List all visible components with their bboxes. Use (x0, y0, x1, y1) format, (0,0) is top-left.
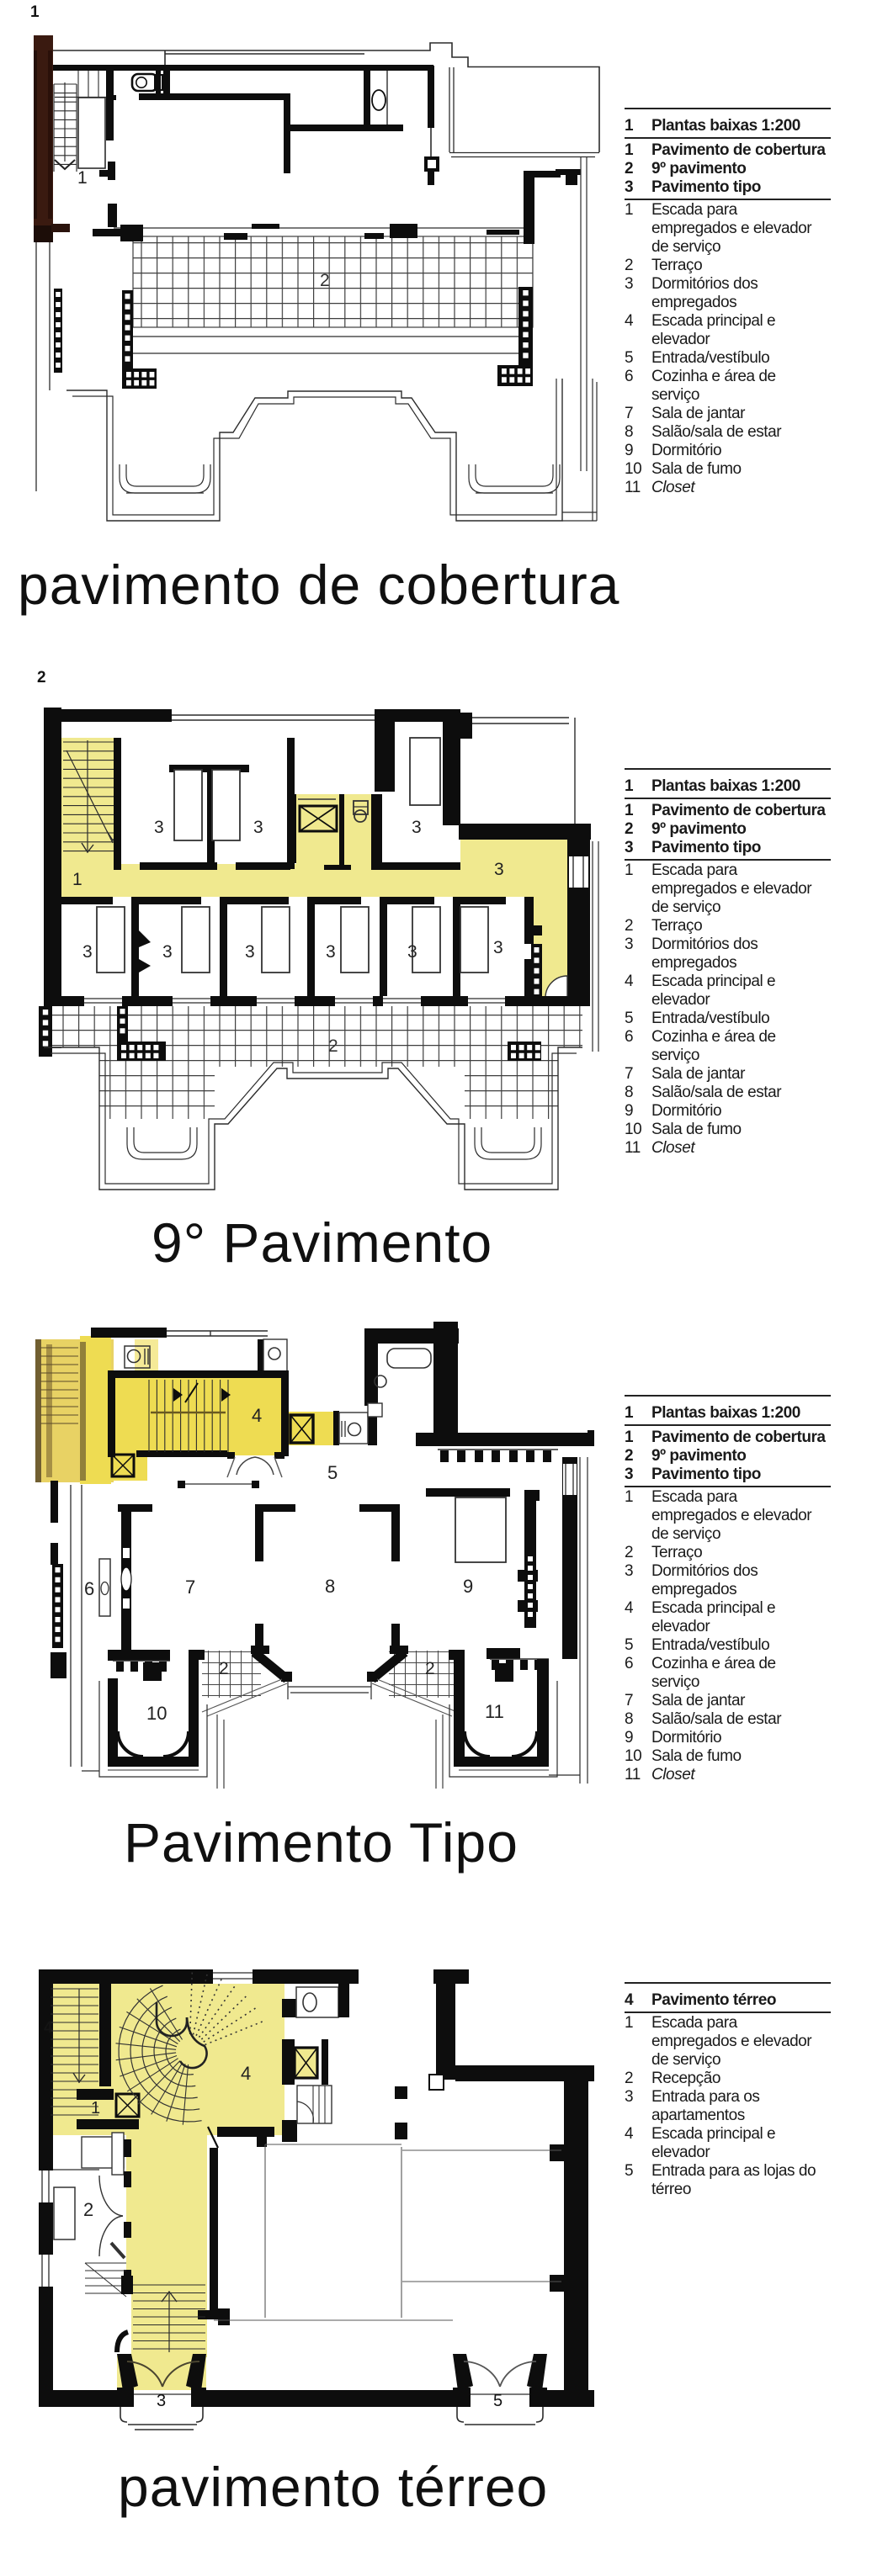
svg-text:7: 7 (185, 1577, 195, 1598)
svg-text:3: 3 (162, 942, 173, 962)
svg-text:4: 4 (241, 2063, 251, 2084)
svg-text:3: 3 (157, 2392, 166, 2410)
svg-text:3: 3 (326, 942, 336, 962)
svg-text:2: 2 (328, 1036, 338, 1056)
svg-text:2: 2 (320, 271, 330, 290)
svg-text:3: 3 (412, 818, 422, 837)
svg-text:5: 5 (493, 2392, 502, 2410)
svg-text:2: 2 (83, 2199, 93, 2220)
svg-text:10: 10 (146, 1703, 167, 1724)
svg-text:6: 6 (84, 1578, 94, 1599)
svg-text:1: 1 (91, 2099, 100, 2118)
svg-text:3: 3 (154, 818, 164, 837)
svg-text:2: 2 (219, 1659, 229, 1678)
svg-text:2: 2 (425, 1659, 435, 1678)
svg-text:5: 5 (327, 1462, 338, 1483)
svg-text:3: 3 (493, 938, 503, 957)
svg-text:11: 11 (485, 1701, 504, 1722)
svg-text:1: 1 (72, 870, 82, 889)
svg-text:4: 4 (252, 1405, 262, 1426)
svg-text:3: 3 (245, 942, 255, 962)
svg-text:3: 3 (407, 942, 417, 962)
svg-text:1: 1 (77, 168, 88, 188)
svg-text:3: 3 (82, 942, 93, 962)
svg-text:3: 3 (494, 860, 504, 879)
svg-text:8: 8 (325, 1576, 335, 1597)
svg-text:3: 3 (253, 818, 263, 837)
svg-text:9: 9 (463, 1576, 473, 1597)
